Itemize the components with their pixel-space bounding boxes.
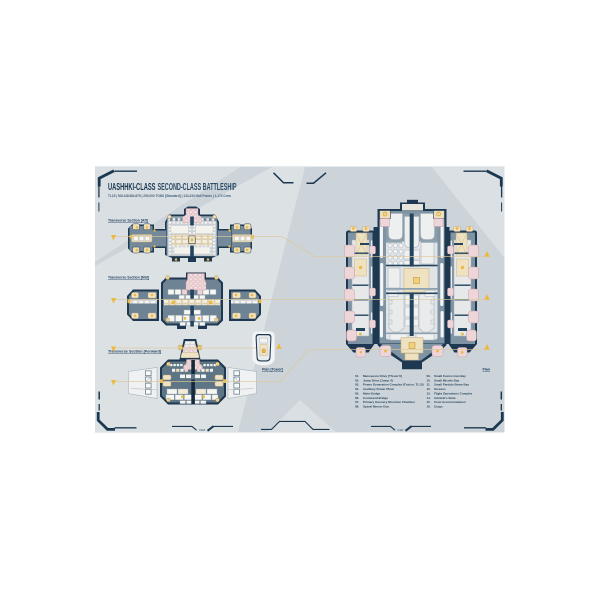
svg-text:08.: 08.: [355, 404, 359, 408]
svg-text:Spinal Meson Gun: Spinal Meson Gun: [363, 404, 389, 408]
svg-text:16.: 16.: [427, 404, 431, 408]
svg-text:Plan: Plan: [483, 368, 491, 372]
svg-text:Transverse Section [Forward]: Transverse Section [Forward]: [108, 350, 161, 354]
svg-text:TL15 | MG-I42/484.875 | 200,00: TL15 | MG-I42/484.875 | 200,000 TONS [St…: [108, 194, 231, 198]
svg-text:Transverse Section [Aft]: Transverse Section [Aft]: [108, 219, 148, 223]
svg-text:UASHHKI-CLASS: UASHHKI-CLASS: [108, 182, 156, 193]
svg-text:C118: C118: [199, 428, 206, 432]
svg-text:C117: C117: [398, 428, 405, 432]
svg-text:SECOND-CLASS BATTLESHIP: SECOND-CLASS BATTLESHIP: [158, 182, 237, 193]
svg-text:Plan [Tower]: Plan [Tower]: [262, 368, 283, 372]
svg-text:Transverse Section [Mid]: Transverse Section [Mid]: [108, 276, 149, 280]
svg-text:Cargo: Cargo: [434, 404, 443, 408]
